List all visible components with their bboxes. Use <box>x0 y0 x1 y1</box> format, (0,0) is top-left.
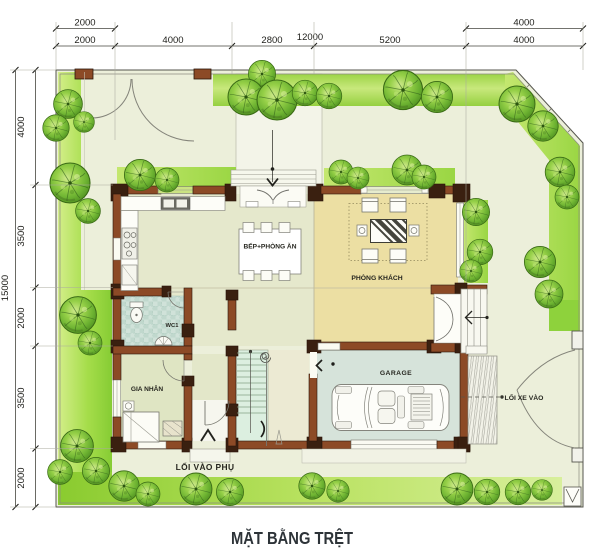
svg-text:4000: 4000 <box>16 116 27 137</box>
svg-text:WC1: WC1 <box>166 323 180 329</box>
svg-text:2000: 2000 <box>16 467 27 488</box>
svg-text:PHÒNG KHÁCH: PHÒNG KHÁCH <box>351 273 402 282</box>
svg-text:4000: 4000 <box>162 35 183 46</box>
svg-text:4000: 4000 <box>513 35 534 46</box>
svg-text:LỐI VÀO PHỤ: LỐI VÀO PHỤ <box>176 461 235 472</box>
svg-text:5200: 5200 <box>379 35 400 46</box>
svg-text:MẶT BẰNG TRỆT: MẶT BẰNG TRỆT <box>231 527 353 548</box>
svg-text:2800: 2800 <box>261 35 282 46</box>
svg-text:GARAGE: GARAGE <box>380 370 412 377</box>
svg-text:3500: 3500 <box>16 387 27 408</box>
svg-text:GIA NHÂN: GIA NHÂN <box>131 384 164 393</box>
svg-text:15000: 15000 <box>0 275 11 301</box>
svg-text:2000: 2000 <box>74 18 95 29</box>
svg-text:2000: 2000 <box>74 35 95 46</box>
svg-text:4000: 4000 <box>513 18 534 29</box>
svg-text:3500: 3500 <box>16 225 27 246</box>
svg-text:12000: 12000 <box>297 32 323 43</box>
svg-text:2000: 2000 <box>16 307 27 328</box>
